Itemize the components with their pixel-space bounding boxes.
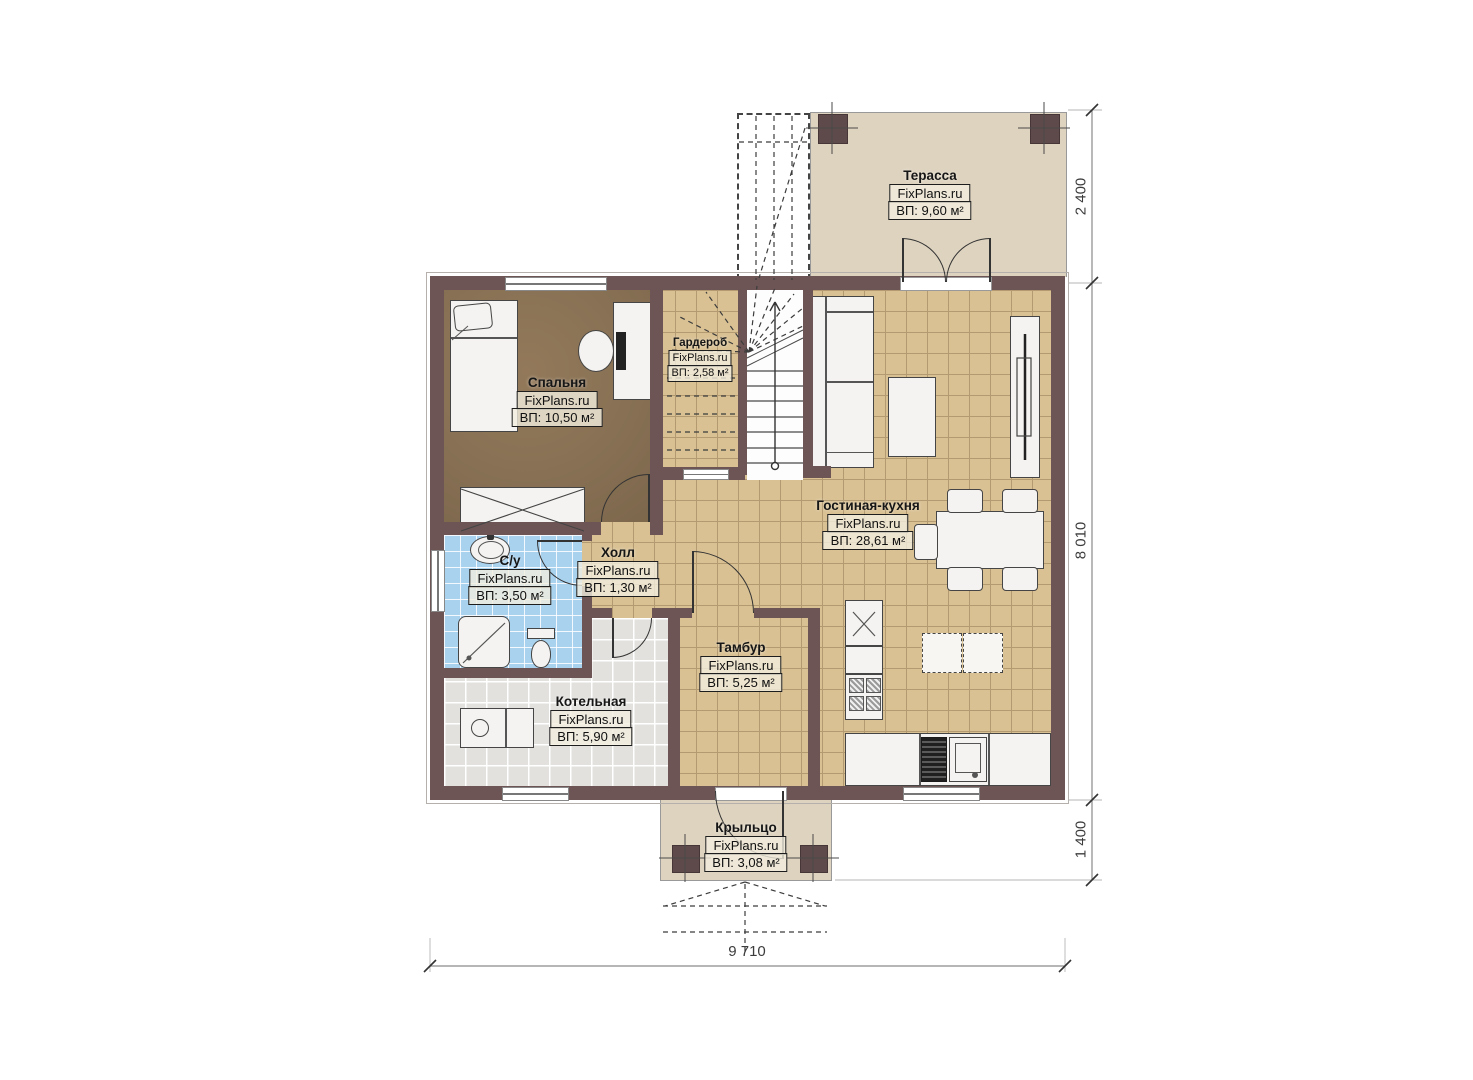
terrace-door-left-leaf (902, 238, 904, 282)
room-area: ВП: 10,50 м² (512, 408, 603, 427)
bathroom-label: С/у FixPlans.ru ВП: 3,50 м² (468, 553, 551, 605)
porch-label: Крыльцо FixPlans.ru ВП: 3,08 м² (704, 820, 787, 872)
wall-stairs-stub (803, 466, 831, 478)
terrace-label: Терасса FixPlans.ru ВП: 9,60 м² (888, 168, 971, 220)
room-name: Крыльцо (704, 820, 787, 835)
watermark: FixPlans.ru (516, 391, 597, 410)
porch-column (672, 845, 700, 873)
living-kitchen-label: Гостиная-кухня FixPlans.ru ВП: 28,61 м² (816, 498, 919, 550)
floor-plan-canvas: Терасса FixPlans.ru ВП: 9,60 м² Спальня … (0, 0, 1473, 1080)
watermark: FixPlans.ru (577, 561, 658, 580)
room-name: Тамбур (699, 640, 782, 655)
room-name: Спальня (512, 375, 603, 390)
room-area: ВП: 2,58 м² (667, 365, 732, 382)
wall-stairs-right (803, 283, 813, 475)
porch-column (800, 845, 828, 873)
room-area: ВП: 5,25 м² (699, 673, 782, 692)
wall-tambour-left (668, 608, 680, 786)
floor-plan-page: { "watermark": "FixPlans.ru", "rooms": {… (0, 0, 1473, 1080)
watermark: FixPlans.ru (700, 656, 781, 675)
wall-bathroom-right-top (582, 535, 592, 541)
wall-tambour-top-right (754, 608, 808, 618)
boiler-door-leaf (612, 618, 614, 658)
watermark: FixPlans.ru (469, 569, 550, 588)
dim-terrace-depth: 2 400 (1073, 172, 1090, 222)
bedroom-window (505, 277, 607, 291)
room-name: С/у (468, 553, 551, 568)
room-name: Котельная (549, 694, 632, 709)
terrace-column (818, 114, 848, 144)
bathroom-window (431, 550, 445, 612)
dim-house-depth: 8 010 (1073, 516, 1090, 566)
room-area: ВП: 5,90 м² (549, 727, 632, 746)
bedroom-label: Спальня FixPlans.ru ВП: 10,50 м² (512, 375, 603, 427)
room-area: ВП: 1,30 м² (576, 578, 659, 597)
watermark: FixPlans.ru (705, 836, 786, 855)
wall-hall-bottom-right (652, 608, 668, 618)
wall-tambour-right (808, 608, 820, 786)
terrace-exterior-stairs (737, 113, 810, 280)
room-name: Гостиная-кухня (816, 498, 919, 513)
dim-porch-depth: 1 400 (1073, 815, 1090, 865)
room-name: Холл (576, 545, 659, 560)
wall-tambour-top-left (680, 608, 692, 618)
bathroom-door-leaf (537, 540, 582, 542)
room-area: ВП: 3,08 м² (704, 853, 787, 872)
room-area: ВП: 9,60 м² (888, 201, 971, 220)
tambour-label: Тамбур FixPlans.ru ВП: 5,25 м² (699, 640, 782, 692)
tambour-door-leaf (692, 551, 694, 613)
exterior-walls (430, 276, 1065, 800)
room-name: Гардероб (667, 337, 732, 349)
dim-house-width: 9 710 (707, 943, 787, 960)
watermark: FixPlans.ru (827, 514, 908, 533)
wardrobe-label: Гардероб FixPlans.ru ВП: 2,58 м² (667, 337, 732, 382)
hall-label: Холл FixPlans.ru ВП: 1,30 м² (576, 545, 659, 597)
wall-bedroom-right (650, 290, 663, 535)
boiler-window (502, 787, 569, 801)
boiler-label: Котельная FixPlans.ru ВП: 5,90 м² (549, 694, 632, 746)
watermark: FixPlans.ru (889, 184, 970, 203)
wall-hall-bottom-left (592, 608, 612, 618)
terrace-column (1030, 114, 1060, 144)
wall-bedroom-bottom (444, 522, 601, 535)
room-area: ВП: 28,61 м² (823, 531, 914, 550)
room-name: Терасса (888, 168, 971, 183)
wardrobe-pocket-door (683, 469, 729, 480)
watermark: FixPlans.ru (668, 350, 731, 367)
terrace-door-right-leaf (989, 238, 991, 282)
watermark: FixPlans.ru (550, 710, 631, 729)
bedroom-door-leaf (648, 474, 650, 522)
room-area: ВП: 3,50 м² (468, 586, 551, 605)
wall-bathroom-bottom (444, 668, 592, 678)
kitchen-window (903, 787, 980, 801)
wall-stairs-left (738, 283, 747, 475)
wall-bathroom-right (582, 586, 592, 678)
